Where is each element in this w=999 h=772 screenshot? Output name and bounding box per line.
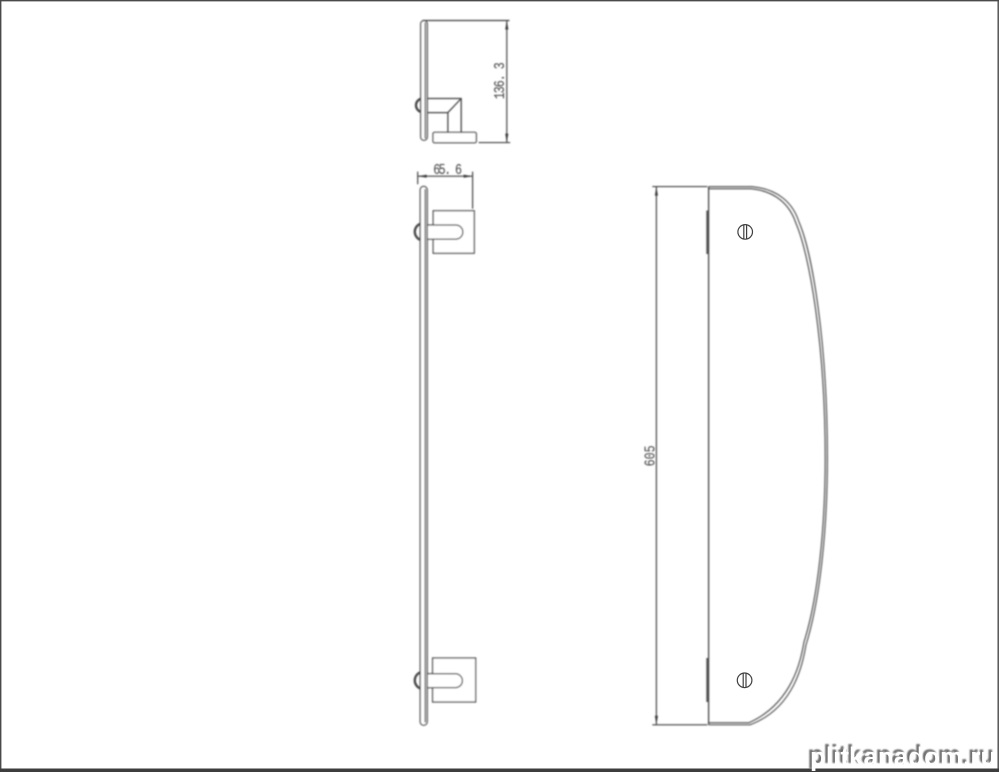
svg-text:plitkanadom.ru: plitkanadom.ru [810,742,996,772]
svg-text:65. 6: 65. 6 [433,163,462,180]
svg-text:136. 3: 136. 3 [493,62,510,99]
svg-text:605: 605 [643,445,660,466]
